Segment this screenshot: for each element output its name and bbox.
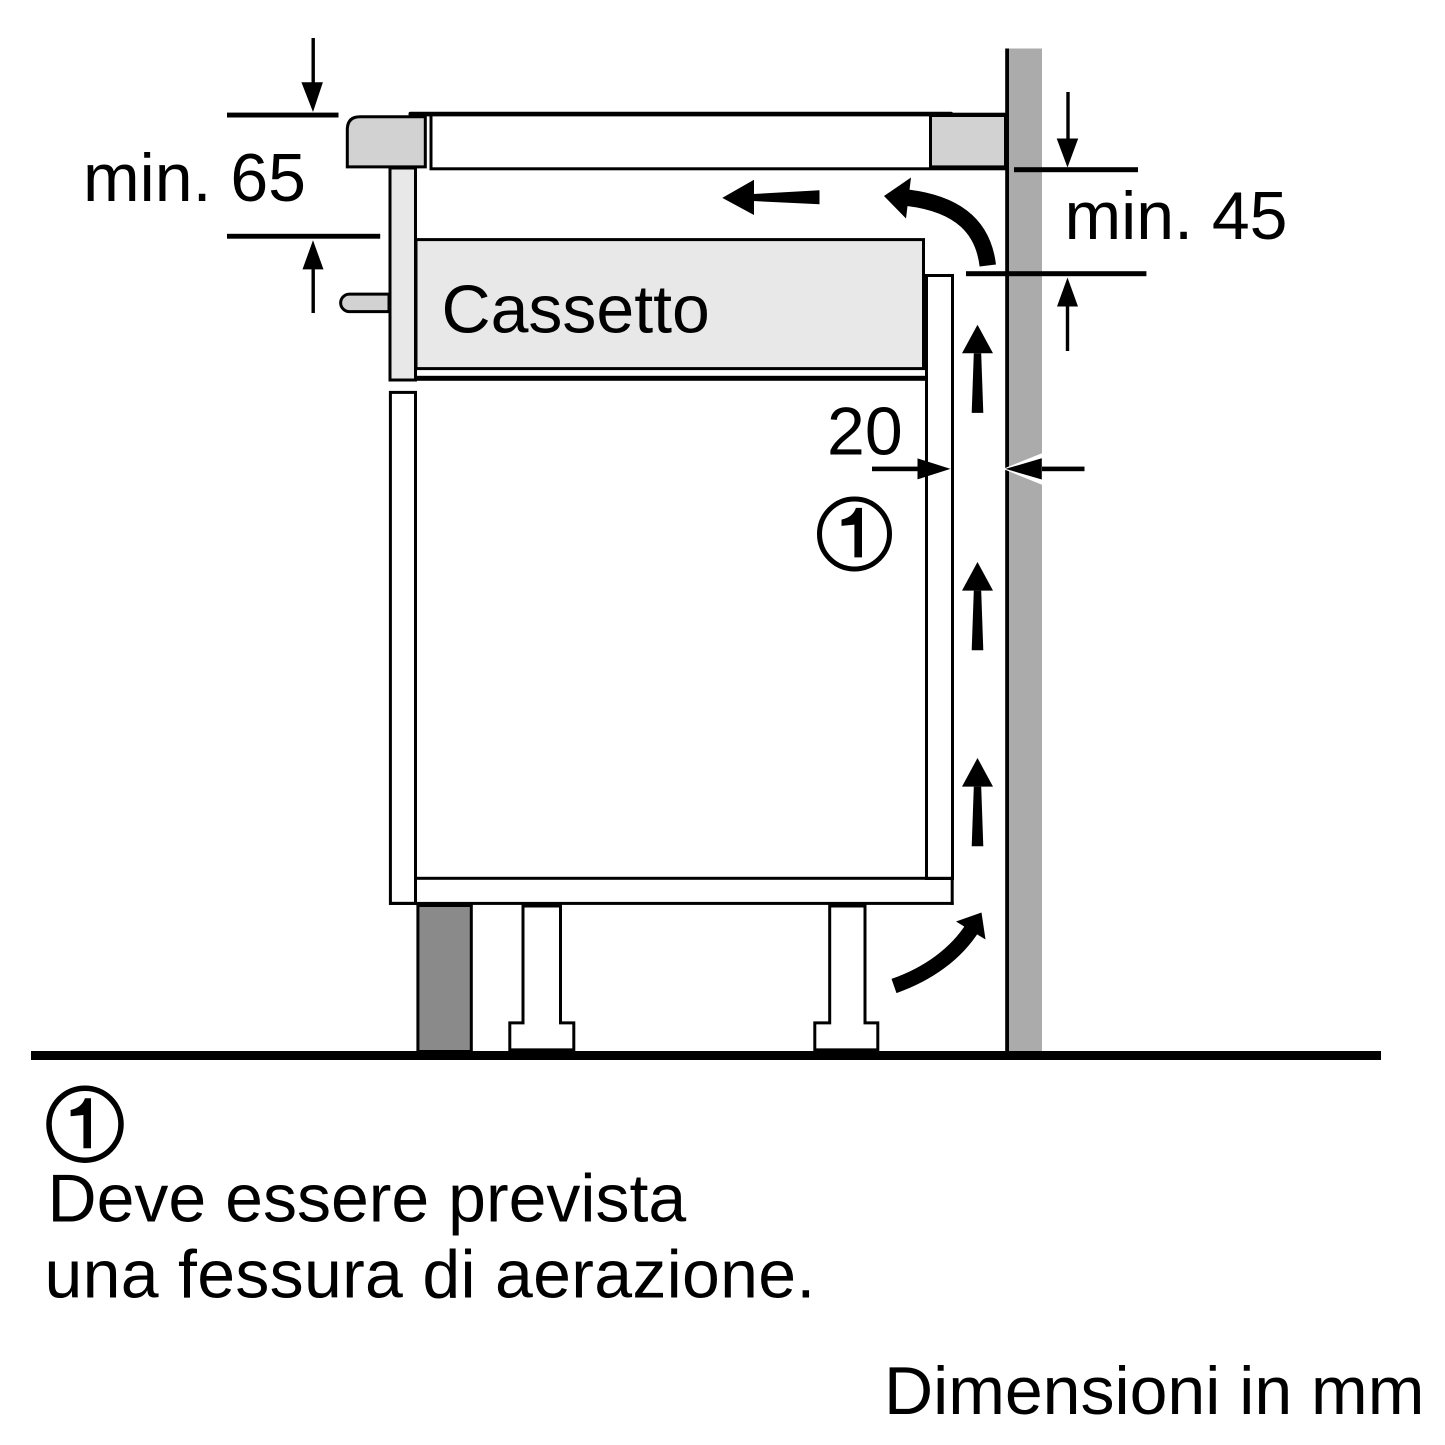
svg-text:Dimensioni in mm: Dimensioni in mm [884, 1353, 1424, 1429]
svg-text:20: 20 [827, 394, 903, 470]
svg-text:Cassetto: Cassetto [442, 271, 710, 347]
svg-text:Deve essere prevista: Deve essere prevista [48, 1161, 687, 1237]
svg-text:min. 45: min. 45 [1065, 178, 1288, 254]
svg-text:min. 65: min. 65 [83, 140, 306, 216]
svg-text:una fessura di aerazione.: una fessura di aerazione. [45, 1237, 816, 1313]
